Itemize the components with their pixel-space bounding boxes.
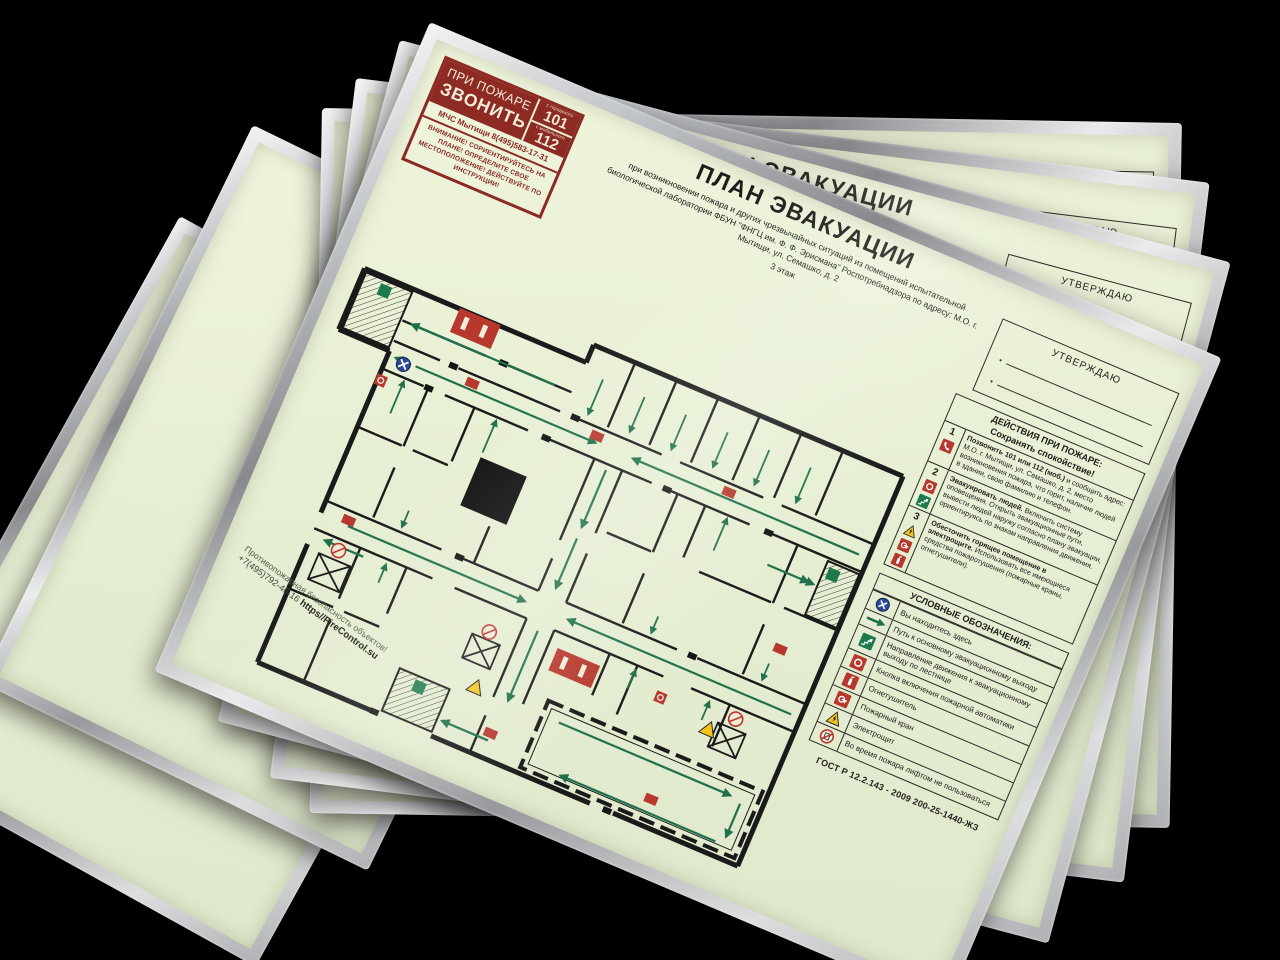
no-lift-icon [817,726,837,746]
fire-button-icon [849,652,869,672]
electro-icons [466,629,719,786]
fire-hose-icon [896,536,913,553]
action-icons [938,437,955,454]
exit-stairs-icon [915,492,932,509]
action-number: 3 [912,510,921,522]
fire-post-block [548,648,600,688]
action-number: 2 [931,466,940,478]
you-are-here-icon [873,595,893,615]
fire-hose-icon [833,689,853,709]
photo-scene: УТВЕРЖДАЮ УТВЕРЖДАЮ ПЛАН ЭВАКУАЦИИ УТВЕР… [0,0,1280,960]
extinguisher-icon [890,551,907,568]
electro-icon [825,708,845,728]
shaft-block [460,457,527,525]
electro-icon [902,522,919,539]
fire-button-icon [921,478,938,495]
action-number: 1 [948,426,957,438]
elevator-icon [462,633,500,669]
exit-stairs-icon [858,631,878,651]
extinguisher-icon [841,671,861,691]
phone-icon [938,437,955,454]
